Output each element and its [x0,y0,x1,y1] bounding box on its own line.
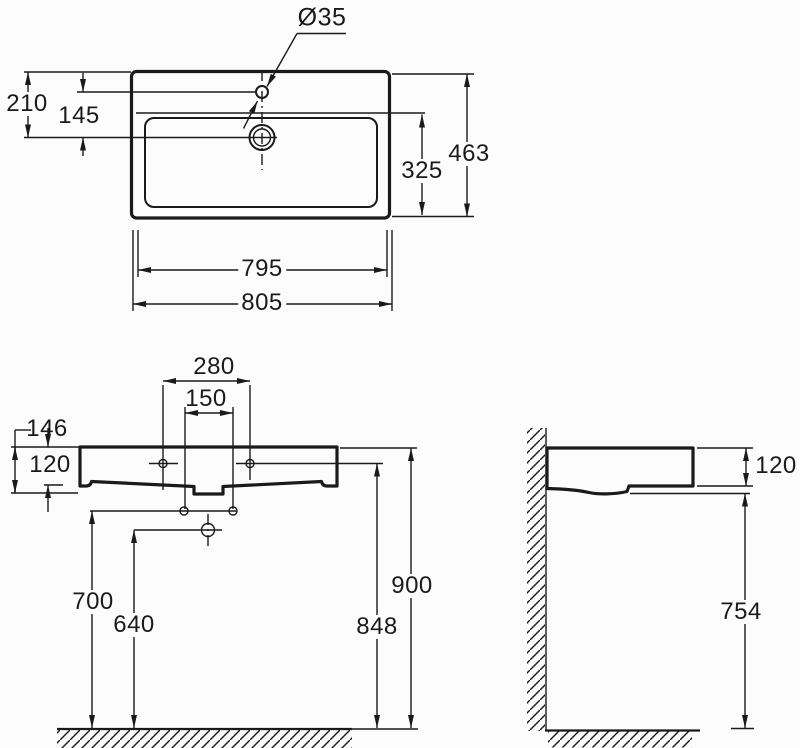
dim-label-diameter-35: Ø35 [298,6,347,31]
dim-label-120-front: 120 [29,453,71,477]
drawing-canvas: Ø35 210 145 463 325 795 805 280 150 146 … [0,0,800,748]
dim-label-145: 145 [55,104,103,128]
dim-label-325: 325 [398,159,446,183]
dim-label-146: 146 [26,417,68,441]
floor-hatching-side [548,732,692,748]
dim-label-900: 900 [388,574,436,598]
dim-label-463: 463 [445,142,493,166]
dim-label-640: 640 [110,613,158,637]
sink-profile-front [80,447,337,494]
dim-label-150: 150 [185,387,227,411]
dim-label-280: 280 [193,355,235,379]
front-view [11,381,418,748]
side-view [527,428,754,748]
dim-label-754: 754 [717,600,765,624]
dim-label-120-side: 120 [755,454,797,478]
floor-hatching-front [57,730,352,748]
dim-label-700: 700 [69,590,117,614]
dim-label-210: 210 [3,92,51,116]
sink-outer-edge-top [132,72,390,219]
wall-hatching [527,428,545,731]
dim-label-848: 848 [353,615,401,639]
sink-profile-side [547,448,693,494]
dim-label-795: 795 [238,257,286,281]
dim-label-805: 805 [238,291,286,315]
